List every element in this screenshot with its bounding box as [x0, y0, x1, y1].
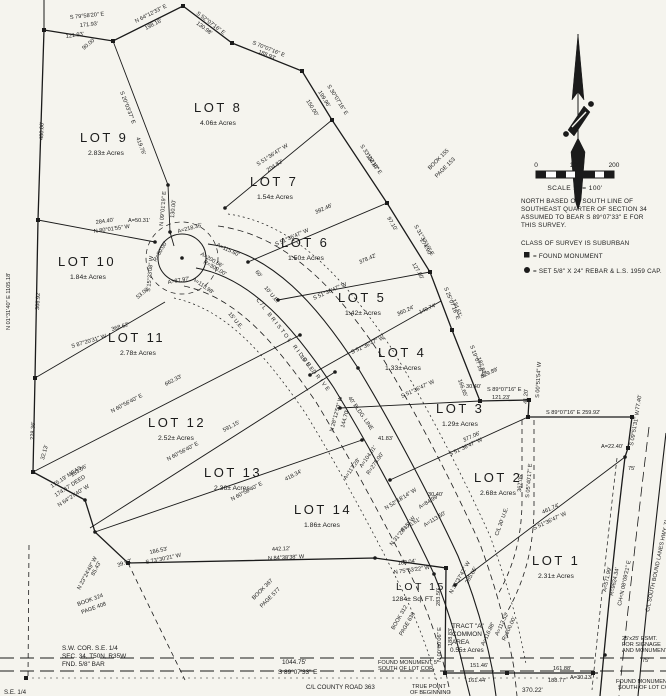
found-monument-marker: [428, 270, 432, 274]
bearing-label: S 89°07'16" E: [487, 387, 522, 393]
lot-acreage: 2.83± Acres: [88, 150, 124, 157]
bearing-label: 0.55± Acres: [450, 647, 484, 654]
bearing-label: 370.22': [522, 687, 543, 694]
lot-name: LOT 12: [148, 415, 206, 430]
bearing-label: 77.40': [635, 394, 644, 410]
scale-tick-0: 0: [534, 162, 538, 169]
bearing-label: N 00°50'06" E: [437, 627, 443, 662]
bearing-label: C/L COUNTY ROAD 363: [306, 684, 375, 691]
bearing-label: 418.34': [284, 469, 303, 483]
survey-line: [506, 420, 534, 614]
found-monument-marker: [181, 4, 185, 8]
bearing-label: AREA: [452, 639, 470, 646]
scale-bar: 0 100 200 SCALE 1" = 100': [534, 162, 620, 192]
bearing-label: A=115.60': [215, 242, 240, 258]
lot-name: LOT 9: [80, 130, 128, 145]
lot-acreage: 1284± Sq. FT.: [392, 596, 434, 603]
lot-name: LOT 15: [396, 581, 446, 593]
scale-tick-100: 100: [570, 162, 581, 169]
set-rebar-marker: [180, 256, 184, 260]
bearing-label: 186.53': [149, 546, 168, 556]
set-rebar-marker: [432, 572, 436, 576]
bearing-label: 150.00': [304, 99, 319, 118]
set-rebar-label: = SET 5/8" X 24" REBAR & L.S. 1959 CAP.: [533, 268, 662, 275]
bearing-label: N 01°31'40" E 1105.18': [6, 273, 12, 330]
survey-class-line: CLASS OF SURVEY IS SUBURBAN: [521, 240, 630, 247]
bearing-label: A=117.28': [343, 457, 362, 481]
bearing-label: S 51°36'47" W: [532, 511, 568, 532]
bearing-label: TRACT "A": [452, 623, 484, 630]
scale-tick-200: 200: [609, 162, 620, 169]
bearing-label: 121.23': [492, 395, 510, 401]
bearing-distance-labels: S 79°58'20" E171.93'121.93'N 64°12'33" E…: [4, 3, 666, 696]
bearing-label: 144.70': [340, 409, 351, 428]
lot-name: LOT 10: [58, 254, 116, 269]
symbol-legend: = FOUND MONUMENT = SET 5/8" X 24" REBAR …: [524, 252, 662, 275]
bearing-label: S 51°36'47" W: [400, 379, 436, 400]
found-monument-marker: [444, 566, 448, 570]
bearing-label: 378.42': [358, 253, 377, 266]
survey-plat-page: { "legend": { "scale_ticks": ["0", "100"…: [0, 0, 666, 696]
set-rebar-marker: [168, 230, 172, 234]
lot-name: LOT 6: [281, 235, 329, 250]
bearing-label: CH=N 08°09'21" E: [617, 560, 633, 607]
plat-drawing: S 79°58'20" E171.93'121.93'N 64°12'33" E…: [0, 0, 666, 696]
set-rebar-marker: [603, 653, 607, 657]
bearing-label: 161.44': [468, 678, 486, 684]
bearing-label: S 89°07'33" E: [278, 668, 317, 676]
found-monument-marker: [330, 118, 334, 122]
lot-acreage: 1.33± Acres: [385, 365, 421, 372]
boundary-and-lot-lines: [0, 0, 666, 696]
bearing-label: 121.93': [65, 32, 84, 40]
found-monument-marker: [111, 39, 115, 43]
found-monument-marker: [230, 41, 234, 45]
set-rebar-marker: [153, 240, 157, 244]
set-rebar-marker: [623, 455, 627, 459]
bearing-label: 75': [628, 466, 635, 472]
bearing-label: S 00°51'54" W: [535, 361, 543, 398]
bearing-label: N 84°38'38" W: [268, 554, 305, 562]
bearing-label: 419.76': [134, 137, 146, 156]
lot-acreage: 4.06± Acres: [200, 120, 236, 127]
survey-line: [44, 6, 632, 457]
found-monument-icon: [524, 252, 530, 258]
lot-name: LOT 3: [436, 401, 484, 416]
bearing-label: 591.15': [222, 420, 241, 434]
note-line-2: SOUTHEAST QUARTER OF SECTION 34: [521, 206, 647, 213]
bearing-label: OF BEGINNING: [410, 690, 451, 696]
lot-acreage: 2.68± Acres: [480, 490, 516, 497]
set-rebar-marker: [223, 206, 227, 210]
lot-acreage: 1.42± Acres: [345, 310, 381, 317]
lot-name: LOT 11: [108, 330, 165, 345]
lot-name: LOT 14: [294, 502, 352, 517]
lot-acreage: 2.36± Acres: [214, 485, 250, 492]
bearing-label: 360.24': [396, 305, 415, 318]
lot-name: LOT 5: [338, 290, 386, 305]
set-rebar-marker: [166, 183, 170, 187]
bearing-label: AND MONUMENT: [622, 648, 666, 654]
bearing-label: 662.33': [164, 374, 183, 388]
bearing-label: 30.40': [466, 384, 481, 390]
bearing-label: 53.00': [135, 286, 150, 300]
lot-name: LOT 7: [250, 174, 298, 189]
lot-acreage: 2.52± Acres: [158, 435, 194, 442]
bearing-label: A=30.13': [570, 675, 592, 681]
set-rebar-marker: [388, 478, 392, 482]
survey-line: [128, 563, 185, 680]
bearing-label: SEC. 34, T50N, R35W: [62, 653, 127, 660]
bearing-label: 40' BLDG. LINE: [346, 396, 374, 432]
found-monument-marker: [443, 671, 447, 675]
bearing-label: 392.46': [314, 203, 333, 216]
lot-name: LOT 2: [474, 470, 522, 485]
bearing-label: A=22.40': [601, 444, 623, 450]
lot-acreage: 1.54± Acres: [257, 194, 293, 201]
note-line-1: NORTH BASED ON SOUTH LINE OF: [521, 198, 633, 205]
set-rebar-marker: [246, 260, 250, 264]
bearing-label: S 79°58'20" E: [70, 11, 105, 21]
north-arrow-icon: [564, 34, 594, 210]
set-rebar-marker: [373, 556, 377, 560]
bearing-label: 182.04': [397, 559, 416, 567]
bearing-label: 130.00': [170, 200, 178, 219]
bearing-label: 32.13': [40, 444, 50, 460]
lot-acreage: 1.84± Acres: [70, 274, 106, 281]
bearing-label: SOUTH OF LOT COR.: [378, 666, 435, 672]
bearing-label: N 09°01'19" E: [159, 191, 168, 226]
bearing-label: C/L SOUTH BOUND LANES HWY. 71: [645, 519, 666, 613]
survey-line: [170, 232, 174, 246]
bearing-label: S 05°40'17" E: [525, 463, 534, 498]
found-monument-marker: [42, 28, 46, 32]
bearing-label: S 87°20'31" W: [71, 333, 108, 349]
bearing-label: SOUTH OF LOT COR: [618, 685, 666, 691]
found-monument-marker: [36, 218, 40, 222]
found-monument-marker: [450, 328, 454, 332]
bearing-label: R=50.00': [153, 241, 169, 263]
survey-notes: NORTH BASED ON SOUTH LINE OF SOUTHEAST Q…: [521, 198, 647, 247]
found-monument-marker: [526, 415, 530, 419]
bearing-label: N 60°56'40" E: [110, 393, 144, 415]
found-monument-marker: [24, 676, 28, 680]
bearing-label: 41.20': [523, 389, 530, 404]
lot-acreage: 1.50± Acres: [288, 255, 324, 262]
scale-caption: SCALE 1" = 100': [547, 185, 602, 192]
bearing-label: 480.00': [39, 122, 46, 140]
bearing-label: S.E. 1/4: [4, 689, 27, 696]
bearing-label: C/L 30' U.E.: [494, 506, 510, 536]
found-monument-label: = FOUND MONUMENT: [533, 253, 603, 260]
bearing-label: 188.77': [548, 678, 566, 684]
set-rebar-marker: [333, 370, 337, 374]
note-line-4: THIS SURVEY.: [521, 222, 566, 229]
lot-acreage: 1.29± Acres: [442, 421, 478, 428]
lot-acreage: 2.31± Acres: [538, 573, 574, 580]
bearing-label: 366.92': [35, 292, 42, 310]
bearing-label: S.W. COR. S.E. 1/4: [62, 645, 118, 652]
bearing-label: 30.40': [428, 492, 443, 498]
found-monument-marker: [31, 470, 35, 474]
bearing-label: 1044.75': [282, 659, 306, 666]
bearing-label: FND. 5/8" BAR: [62, 661, 105, 668]
bearing-label: S 15°23'08" W: [146, 255, 155, 292]
lot-acreage: 2.78± Acres: [120, 350, 156, 357]
set-rebar-marker: [360, 438, 364, 442]
bearing-label: A=87.97': [167, 276, 190, 286]
bearing-label: 75': [642, 658, 649, 664]
lot-acreage: 1.86± Acres: [304, 522, 340, 529]
bearing-label: 151.46': [470, 663, 488, 669]
lot-name: LOT 8: [194, 100, 242, 115]
set-rebar-marker: [356, 366, 360, 370]
set-rebar-marker: [83, 498, 87, 502]
bearing-label: A=218.35': [177, 223, 203, 235]
bearing-label: 140.74': [418, 303, 437, 316]
lot-name: LOT 13: [204, 465, 262, 480]
found-monument-marker: [626, 446, 630, 450]
set-rebar-icon: [524, 267, 530, 273]
lot-name: LOT 1: [532, 553, 580, 568]
bearing-label: 284.40': [95, 218, 114, 226]
bearing-label: C/L BRISTOL RIDGE DRIVE: [254, 298, 331, 394]
set-rebar-marker: [298, 333, 302, 337]
bearing-label: 60': [253, 269, 262, 278]
note-line-3: ASSUMED TO BEAR S 89°07'33" E FOR: [521, 213, 644, 221]
bearing-label: COMMON: [452, 631, 482, 638]
survey-line: [497, 420, 522, 596]
bearing-label: 10' U.E.: [262, 285, 280, 304]
bearing-label: 171.93': [80, 21, 99, 29]
set-rebar-marker: [93, 530, 97, 534]
survey-line: [638, 433, 666, 696]
bearing-label: A=50.31': [128, 218, 150, 224]
found-monument-marker: [385, 201, 389, 205]
lot-name: LOT 4: [378, 345, 426, 360]
survey-line: [33, 30, 44, 472]
bearing-label: 228.36': [30, 422, 37, 440]
bearing-label: S 89°07'16" E 259.92': [546, 410, 600, 416]
bearing-label: N 60°56'40" E: [166, 441, 200, 463]
found-monument-marker: [505, 671, 509, 675]
bearing-label: 127.80': [410, 262, 424, 281]
found-monument-marker: [33, 376, 37, 380]
bearing-label: 90.00': [81, 37, 96, 51]
bearing-label: 442.12': [272, 546, 290, 553]
bearing-label: 41.83': [378, 436, 393, 442]
found-monument-marker: [300, 69, 304, 73]
bearing-label: 161.88': [553, 666, 571, 672]
